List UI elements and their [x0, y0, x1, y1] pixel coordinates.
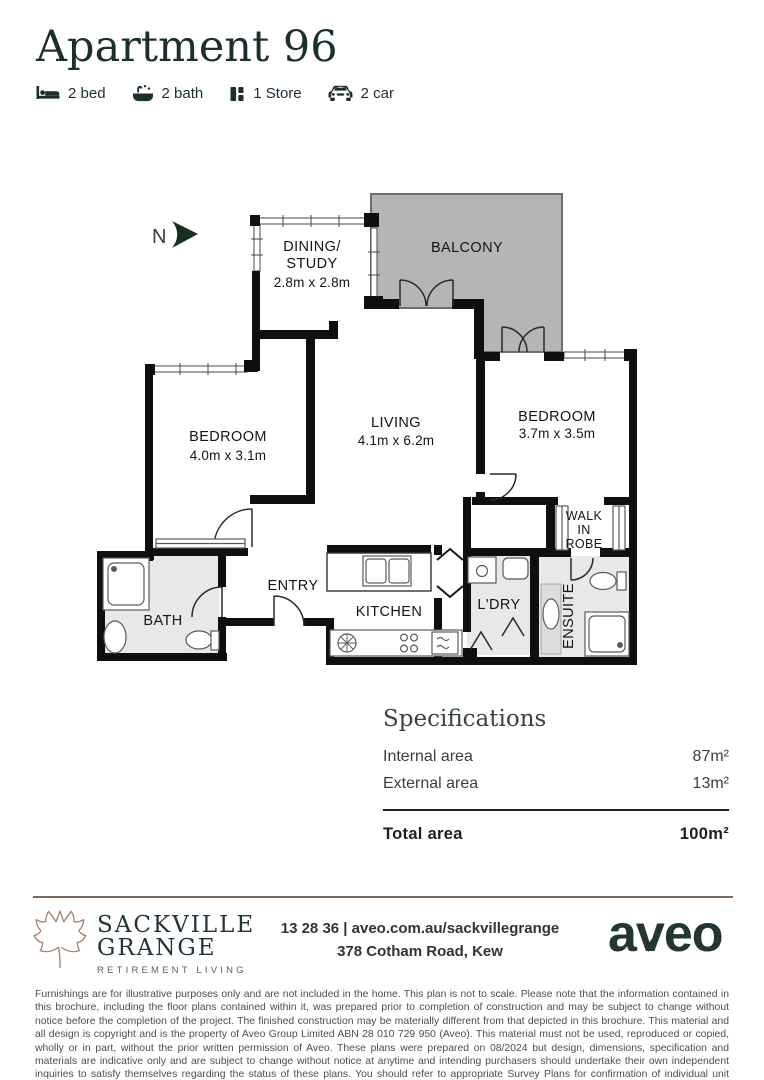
- room-label-ensuite: ENSUITE: [561, 583, 577, 649]
- bath-icon: [132, 84, 154, 103]
- contact-phone-url: 13 28 36 | aveo.com.au/sackvillegrange: [240, 920, 600, 937]
- room-label-wir-1: WALK: [566, 509, 603, 523]
- spec-value-total: 100m²: [680, 825, 729, 844]
- brochure-page: Apartment 96 2 bed 2 bath: [0, 0, 764, 1080]
- brand-line-1: SACKVILLE: [97, 914, 255, 937]
- feature-car: 2 car: [328, 85, 394, 102]
- room-dims-bedroom1: 4.0m x 3.1m: [190, 448, 266, 463]
- floor-plan: N DINING/ STUDY 2.8m x 2.8m BALCONY BEDR…: [95, 180, 653, 680]
- aveo-wordmark: aveo: [608, 905, 723, 963]
- room-label-bath: BATH: [143, 613, 182, 629]
- feature-bed-label: 2 bed: [68, 85, 106, 102]
- room-label-balcony: BALCONY: [431, 240, 503, 256]
- brand-text: SACKVILLE GRANGE RETIREMENT LIVING: [97, 908, 255, 976]
- room-label-dining-1: DINING/: [283, 239, 341, 255]
- brand-line-2: GRANGE: [97, 937, 255, 960]
- room-label-laundry: L'DRY: [477, 597, 520, 613]
- spec-row-total: Total area 100m²: [383, 825, 729, 844]
- page-title: Apartment 96: [36, 22, 338, 72]
- room-label-wir-2: IN: [577, 523, 590, 537]
- contact-block: 13 28 36 | aveo.com.au/sackvillegrange 3…: [240, 920, 600, 960]
- spec-divider: [383, 809, 729, 811]
- feature-store: 1 Store: [229, 85, 301, 102]
- aveo-logo: aveo: [608, 902, 743, 966]
- maple-leaf-icon: [33, 908, 87, 977]
- brand-tagline: RETIREMENT LIVING: [97, 965, 255, 976]
- disclaimer-text: Furnishings are for illustrative purpose…: [35, 988, 729, 1080]
- spec-value-internal: 87m²: [693, 748, 729, 766]
- specifications-section: Specifications Internal area 87m² Extern…: [383, 706, 729, 844]
- store-icon: [229, 86, 245, 102]
- feature-bath: 2 bath: [132, 84, 204, 103]
- feature-bed: 2 bed: [36, 85, 106, 102]
- room-dims-living: 4.1m x 6.2m: [358, 433, 434, 448]
- car-icon: [328, 85, 353, 102]
- room-dims-bedroom2: 3.7m x 3.5m: [519, 426, 595, 441]
- room-label-entry: ENTRY: [268, 578, 319, 594]
- aveo-sprout-icon: [642, 904, 658, 968]
- feature-bath-label: 2 bath: [162, 85, 204, 102]
- spec-label-total: Total area: [383, 825, 463, 844]
- feature-row: 2 bed 2 bath 1 Store: [36, 84, 394, 103]
- feature-store-label: 1 Store: [253, 85, 301, 102]
- feature-car-label: 2 car: [361, 85, 394, 102]
- north-label: N: [152, 226, 166, 248]
- footer-divider: [33, 896, 733, 898]
- room-label-kitchen: KITCHEN: [356, 604, 422, 620]
- room-label-bedroom2: BEDROOM: [518, 409, 596, 425]
- room-label-living: LIVING: [371, 415, 421, 431]
- spec-label-internal: Internal area: [383, 748, 473, 766]
- bed-icon: [36, 85, 60, 102]
- room-label-bedroom1: BEDROOM: [189, 429, 267, 445]
- opening-markers: [437, 549, 463, 597]
- room-label-dining-2: STUDY: [286, 256, 337, 272]
- specifications-heading: Specifications: [383, 706, 729, 732]
- balcony-area: [371, 194, 562, 352]
- spec-row-external: External area 13m²: [383, 775, 729, 793]
- spec-value-external: 13m²: [693, 775, 729, 793]
- sackville-grange-logo: SACKVILLE GRANGE RETIREMENT LIVING: [33, 908, 255, 977]
- room-dims-dining: 2.8m x 2.8m: [274, 275, 350, 290]
- spec-label-external: External area: [383, 775, 478, 793]
- room-label-wir-3: ROBE: [565, 537, 602, 551]
- spec-row-internal: Internal area 87m²: [383, 748, 729, 766]
- contact-address: 378 Cotham Road, Kew: [240, 943, 600, 960]
- north-arrow: N: [152, 221, 198, 248]
